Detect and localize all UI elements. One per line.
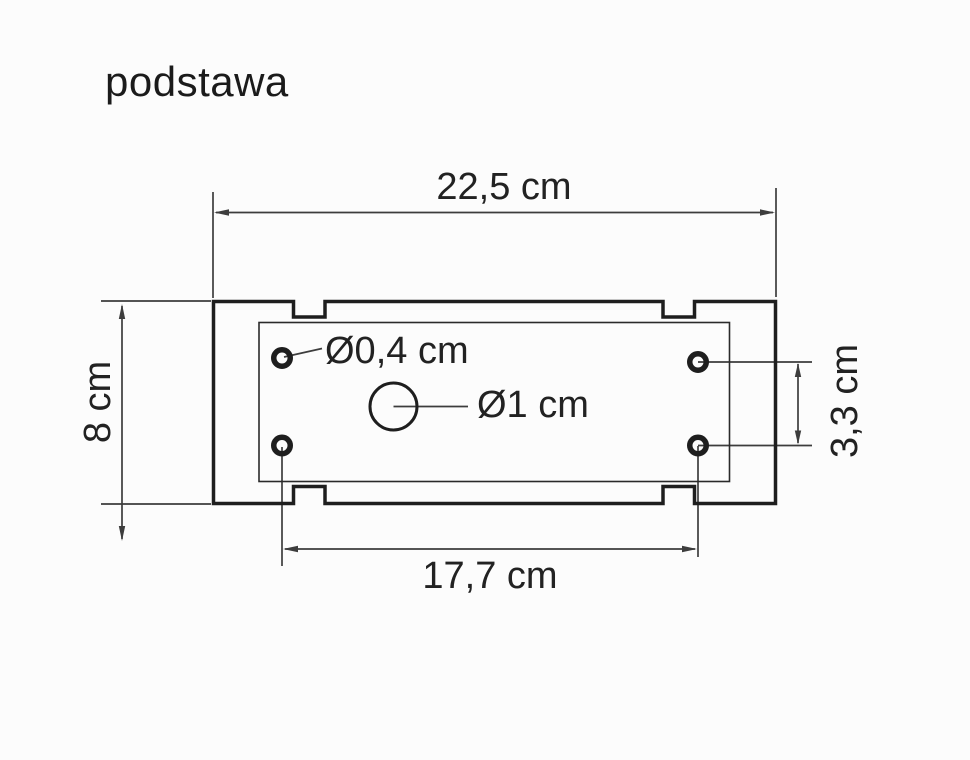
dimension-overall-width: 22,5 cm xyxy=(213,166,776,298)
overall-width-label: 22,5 cm xyxy=(436,166,571,208)
arrow-up-icon xyxy=(795,363,801,377)
arrow-up-icon xyxy=(119,304,125,319)
hole-pitch-vertical-label: 3,3 cm xyxy=(824,344,866,458)
hole-pitch-horizontal-label: 17,7 cm xyxy=(422,555,557,597)
small-hole-diameter-label: Ø0,4 cm xyxy=(325,330,469,372)
arrow-down-icon xyxy=(119,526,125,541)
technical-drawing-canvas: podstawa 22,5 cm 8 cm 3,3 cm xyxy=(0,0,970,760)
drawing-title: podstawa xyxy=(105,58,289,105)
base-plate-drawing: podstawa 22,5 cm 8 cm 3,3 cm xyxy=(0,0,970,760)
arrow-left-icon xyxy=(283,546,298,552)
arrow-left-icon xyxy=(214,209,229,215)
mount-hole-bottom-left xyxy=(274,437,291,454)
arrow-down-icon xyxy=(795,431,801,445)
arrow-right-icon xyxy=(760,209,775,215)
mount-hole-top-left xyxy=(274,350,291,367)
dimension-hole-pitch-vertical: 3,3 cm xyxy=(698,344,866,458)
overall-height-label: 8 cm xyxy=(77,361,119,443)
dimension-overall-height: 8 cm xyxy=(77,301,211,541)
center-hole-diameter-label: Ø1 cm xyxy=(477,384,589,426)
dimension-hole-pitch-horizontal: 17,7 cm xyxy=(282,446,698,597)
arrow-right-icon xyxy=(682,546,697,552)
